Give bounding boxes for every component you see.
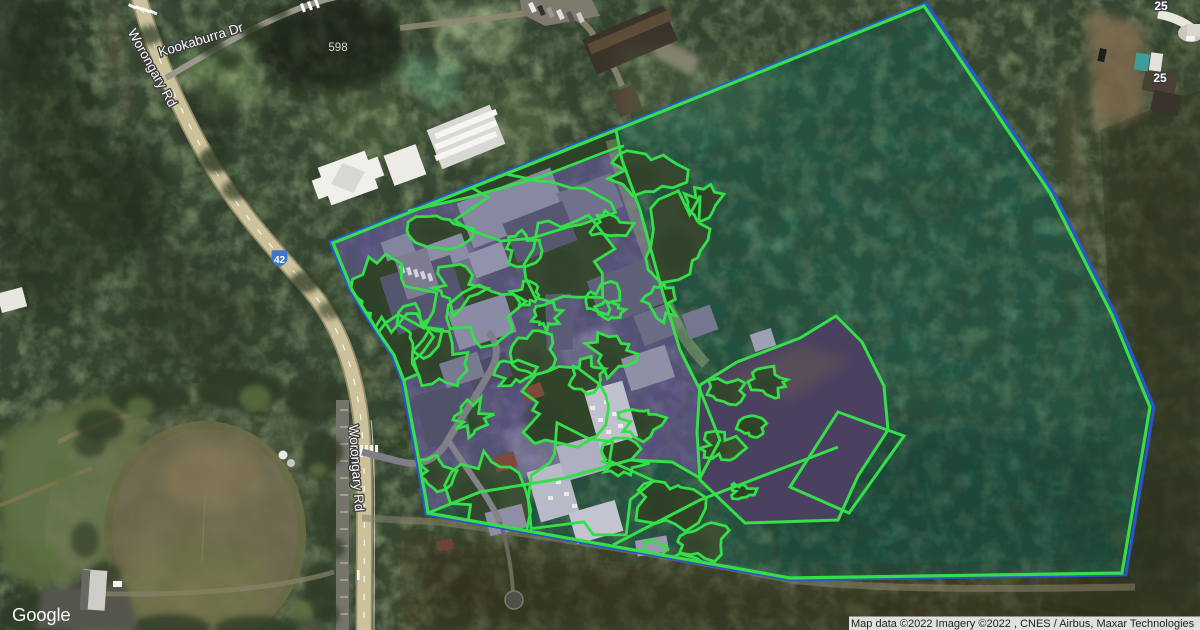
svg-text:25: 25 bbox=[1154, 0, 1168, 13]
svg-text:42: 42 bbox=[274, 255, 286, 266]
svg-text:25: 25 bbox=[1153, 71, 1167, 85]
svg-text:598: 598 bbox=[328, 42, 347, 54]
svg-text:Map data ©2022 Imagery ©2022 ,: Map data ©2022 Imagery ©2022 , CNES / Ai… bbox=[851, 618, 1195, 630]
svg-text:Google: Google bbox=[12, 604, 70, 625]
